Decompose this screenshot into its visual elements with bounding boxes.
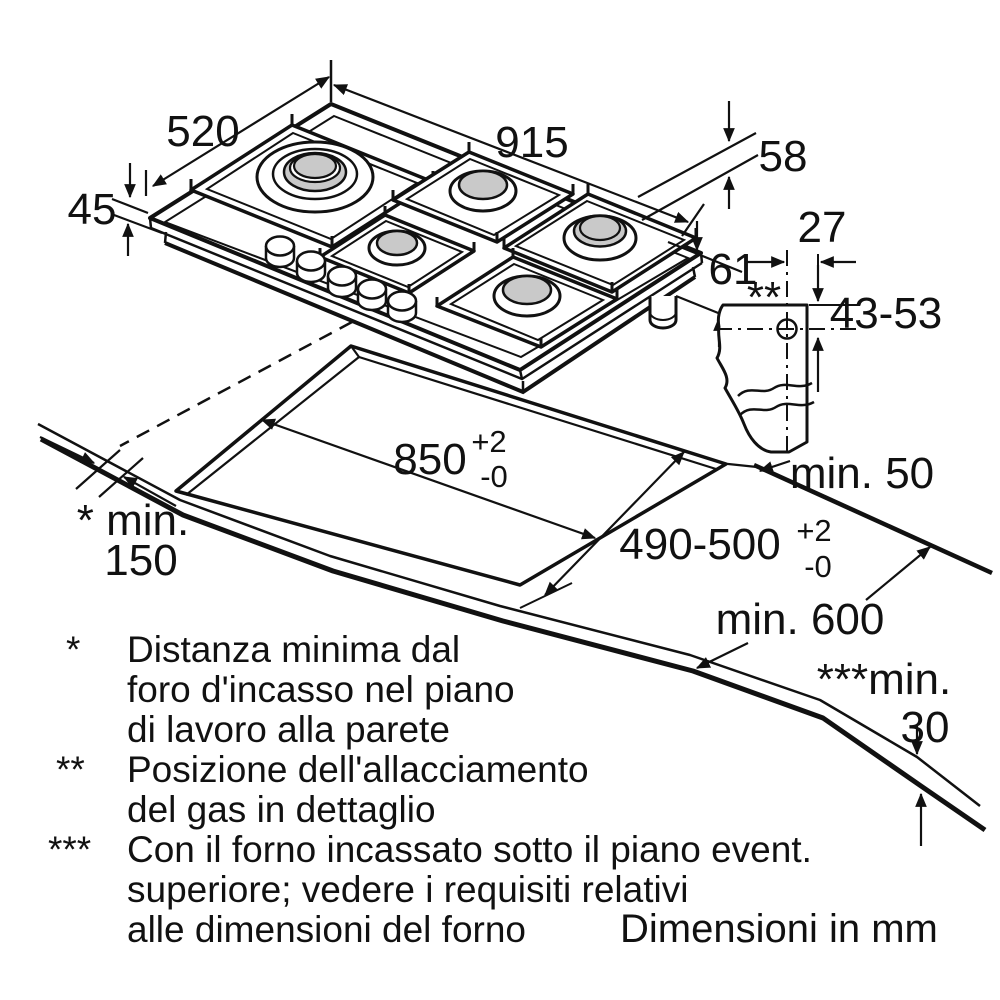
gas-pipe-foot (650, 296, 676, 328)
min600-arrow-down (697, 643, 748, 668)
min30-label-line1: ***min. (817, 655, 952, 704)
min30-label-line2: 30 (901, 703, 950, 752)
burner-cap (459, 171, 507, 199)
dim-27-label: 27 (798, 203, 847, 252)
dim-850-tol-minus: -0 (480, 459, 508, 494)
control-knob (266, 237, 294, 268)
control-knob (297, 252, 325, 283)
gas-detail-marker: ** (747, 273, 781, 322)
installation-diagram-page: 520 915 45 58 61 27 ** 43-53 850 +2 -0 4… (0, 0, 1000, 1000)
footnote-marker-1: * (66, 629, 80, 670)
dim-58-label: 58 (759, 132, 808, 181)
min50-label: min. 50 (790, 449, 934, 498)
dim-915-label: 915 (495, 118, 568, 167)
footnote-1-line-3: di lavoro alla parete (127, 709, 450, 750)
dim-4353-label: 43-53 (830, 289, 943, 338)
burner-cap (503, 276, 551, 304)
dim-490500-tol-minus: -0 (804, 549, 832, 584)
footnote-3-line-3: alle dimensioni del forno (127, 909, 526, 950)
dim-58-ext-lines (638, 133, 758, 220)
burner-cap-top (580, 216, 620, 240)
min150-label-line2: 150 (104, 536, 177, 585)
footnote-1-line-2: foro d'incasso nel piano (127, 669, 515, 710)
footnote-2-line-1: Posizione dell'allacciamento (127, 749, 589, 790)
footnote-2-line-2: del gas in dettaglio (127, 789, 436, 830)
min600-label: min. 600 (716, 595, 885, 644)
min600-arrow-up (866, 547, 930, 600)
footnote-marker-2: ** (56, 749, 85, 790)
control-knob (388, 292, 416, 323)
dim-490500-tol-plus: +2 (796, 513, 831, 548)
burner-cap (377, 231, 417, 255)
control-knob (358, 280, 386, 311)
dim-490-tick (520, 583, 572, 608)
min50-arrow (760, 461, 790, 471)
footnotes-block: * Distanza minima dal foro d'incasso nel… (48, 629, 938, 951)
dim-850-label: 850 (393, 435, 466, 484)
footnote-3-line-2: superiore; vedere i requisiti relativi (127, 869, 688, 910)
dim-850-tol-plus: +2 (471, 424, 506, 459)
units-note: Dimensioni in mm (620, 907, 938, 951)
burner-cap-top (294, 154, 336, 178)
installation-diagram: 520 915 45 58 61 27 ** 43-53 850 +2 -0 4… (0, 0, 1000, 1000)
footnote-3-line-1: Con il forno incassato sotto il piano ev… (127, 829, 812, 870)
control-knob (328, 267, 356, 298)
dim-520-label: 520 (166, 107, 239, 156)
dim-45-label: 45 (68, 185, 117, 234)
dim-490500-label: 490-500 (619, 520, 780, 569)
footnote-1-line-1: Distanza minima dal (127, 629, 460, 670)
footnote-marker-3: *** (48, 829, 91, 870)
